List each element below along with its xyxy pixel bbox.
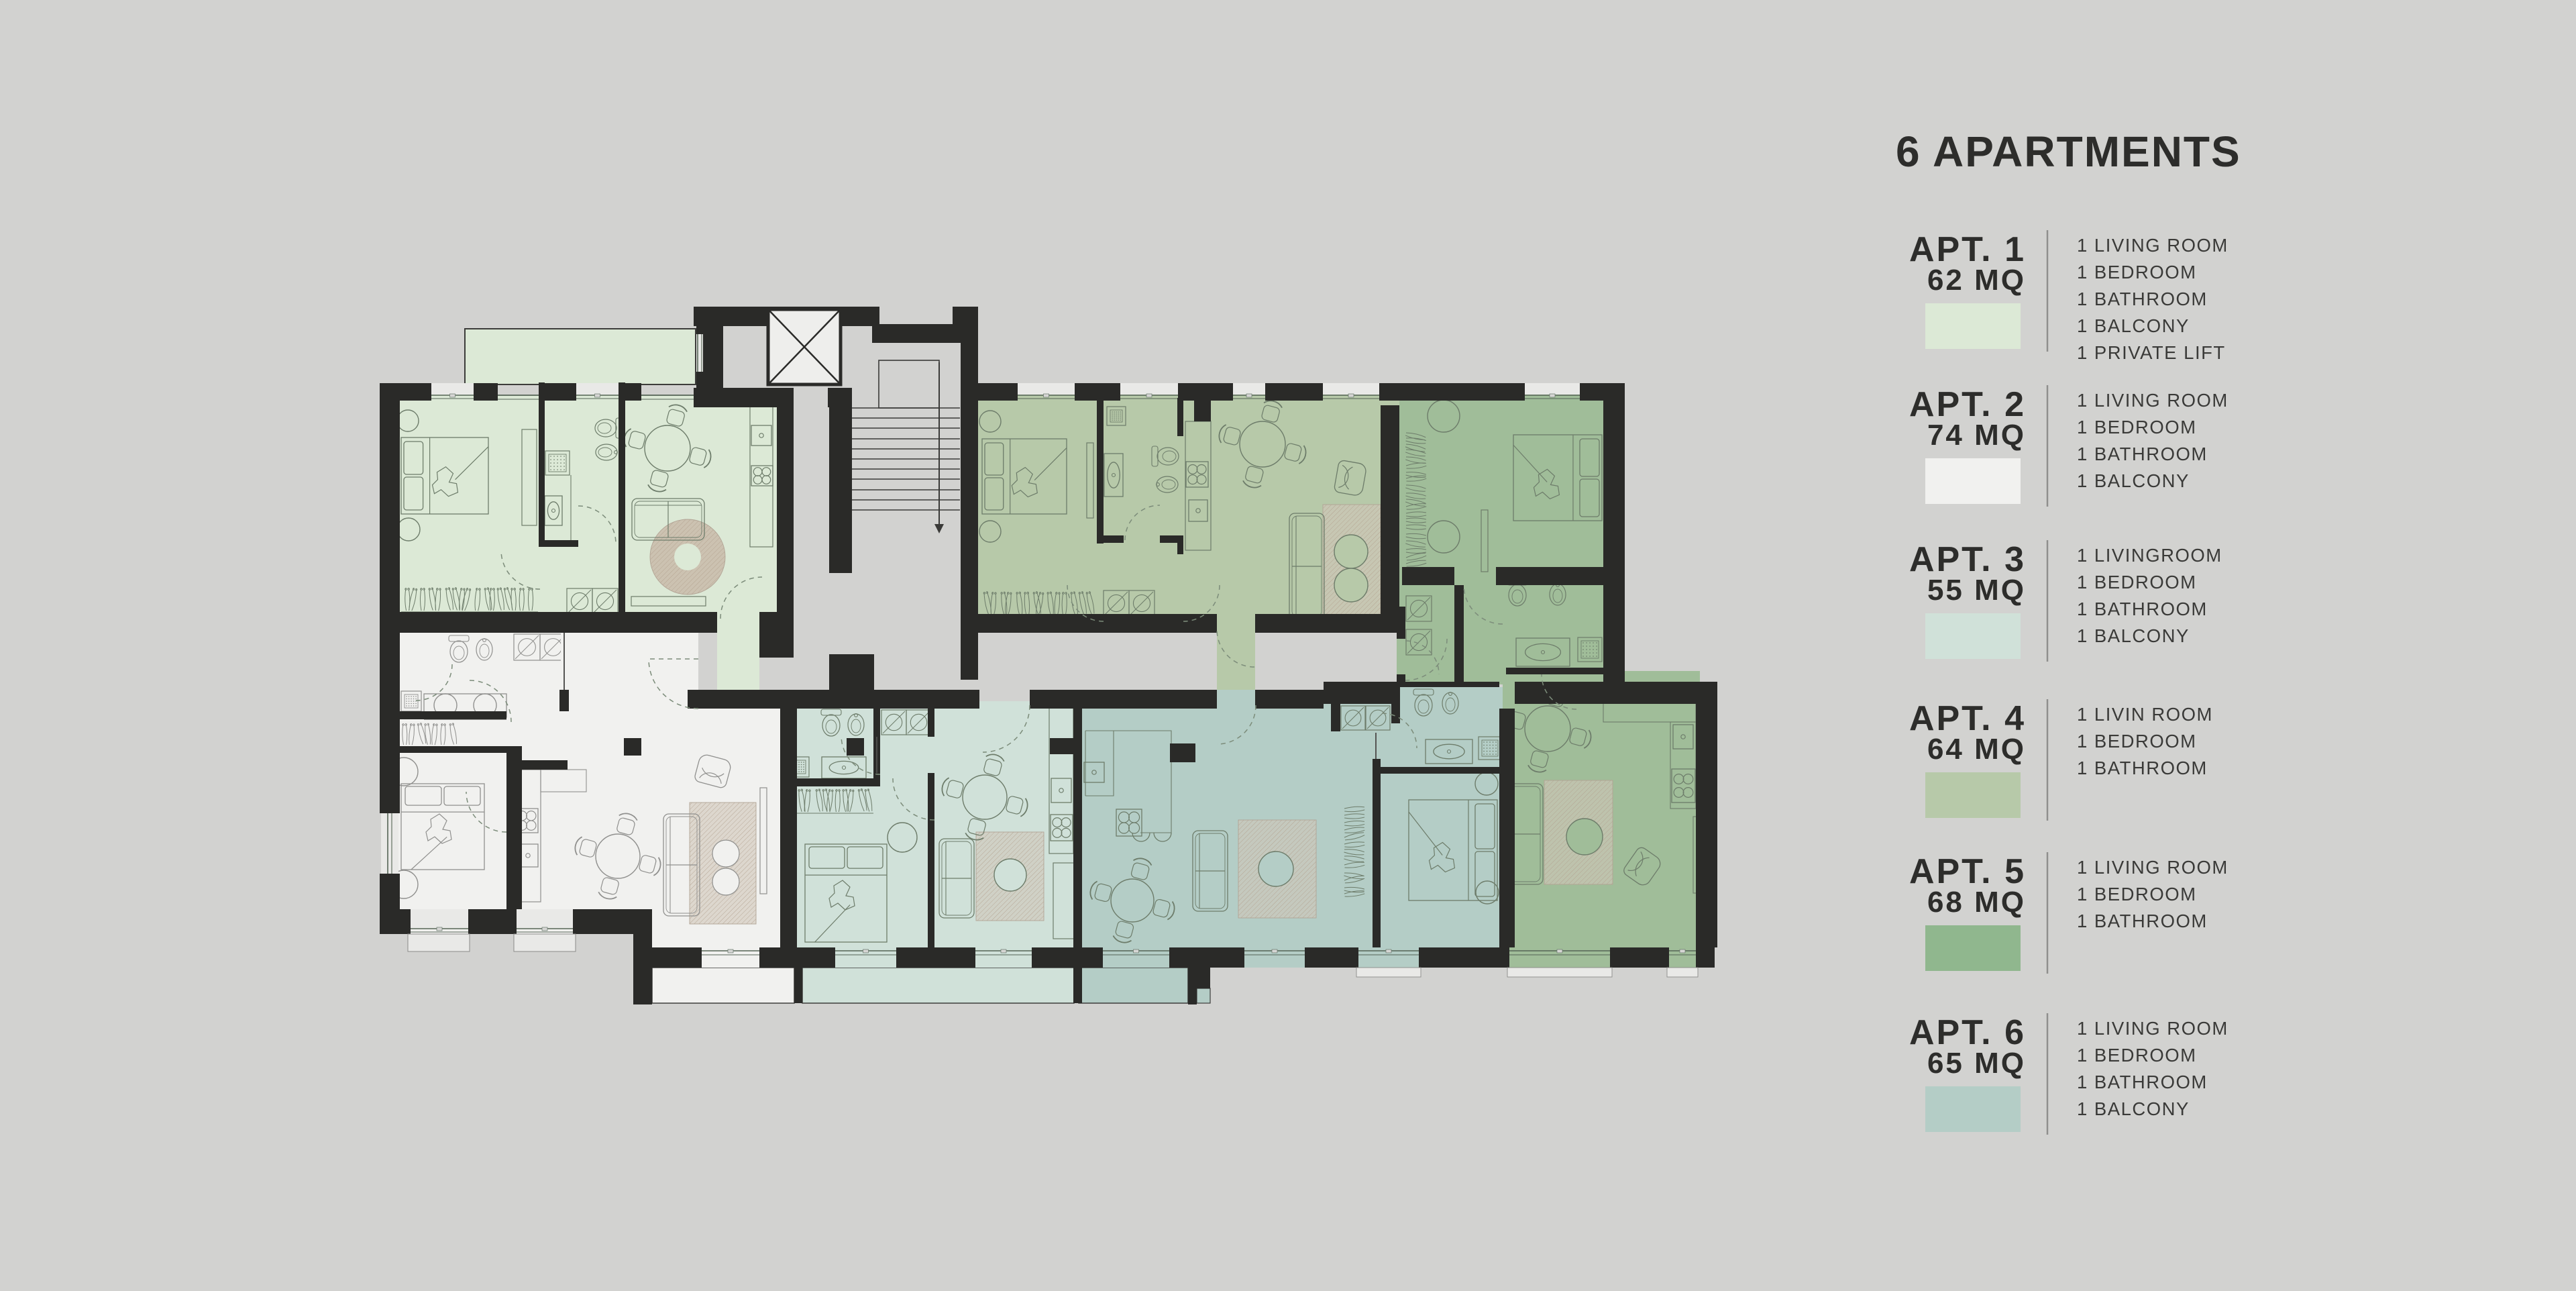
svg-text:1 BEDROOM: 1 BEDROOM: [2077, 1045, 2197, 1066]
svg-text:1 LIVING ROOM: 1 LIVING ROOM: [2077, 390, 2229, 411]
svg-text:1 BEDROOM: 1 BEDROOM: [2077, 417, 2197, 437]
svg-text:74 MQ: 74 MQ: [1927, 419, 2026, 452]
svg-text:55 MQ: 55 MQ: [1927, 574, 2026, 607]
svg-text:1 LIVING ROOM: 1 LIVING ROOM: [2077, 1018, 2229, 1039]
svg-text:1 BATHROOM: 1 BATHROOM: [2077, 444, 2208, 464]
svg-text:1 LIVIN ROOM: 1 LIVIN ROOM: [2077, 704, 2213, 725]
svg-text:65 MQ: 65 MQ: [1927, 1047, 2026, 1080]
svg-text:6 APARTMENTS: 6 APARTMENTS: [1896, 127, 2241, 176]
svg-text:1 BALCONY: 1 BALCONY: [2077, 625, 2190, 646]
svg-text:1 BATHROOM: 1 BATHROOM: [2077, 758, 2208, 778]
svg-text:1 BATHROOM: 1 BATHROOM: [2077, 289, 2208, 309]
svg-text:1 BEDROOM: 1 BEDROOM: [2077, 884, 2197, 905]
svg-text:1 BATHROOM: 1 BATHROOM: [2077, 599, 2208, 619]
svg-text:1 BEDROOM: 1 BEDROOM: [2077, 262, 2197, 282]
svg-text:1 BATHROOM: 1 BATHROOM: [2077, 1072, 2208, 1092]
svg-text:1 BALCONY: 1 BALCONY: [2077, 315, 2190, 336]
svg-text:68 MQ: 68 MQ: [1927, 886, 2026, 919]
svg-text:1 BEDROOM: 1 BEDROOM: [2077, 572, 2197, 592]
svg-text:1 LIVING ROOM: 1 LIVING ROOM: [2077, 857, 2229, 878]
svg-text:62 MQ: 62 MQ: [1927, 264, 2026, 297]
svg-text:1 BATHROOM: 1 BATHROOM: [2077, 911, 2208, 931]
svg-text:1 BALCONY: 1 BALCONY: [2077, 470, 2190, 491]
svg-text:1 LIVINGROOM: 1 LIVINGROOM: [2077, 545, 2222, 566]
svg-text:64 MQ: 64 MQ: [1927, 733, 2026, 766]
svg-text:1 BALCONY: 1 BALCONY: [2077, 1098, 2190, 1119]
svg-text:1 PRIVATE LIFT: 1 PRIVATE LIFT: [2077, 342, 2226, 363]
svg-text:1 BEDROOM: 1 BEDROOM: [2077, 731, 2197, 752]
svg-text:1 LIVING ROOM: 1 LIVING ROOM: [2077, 235, 2229, 256]
